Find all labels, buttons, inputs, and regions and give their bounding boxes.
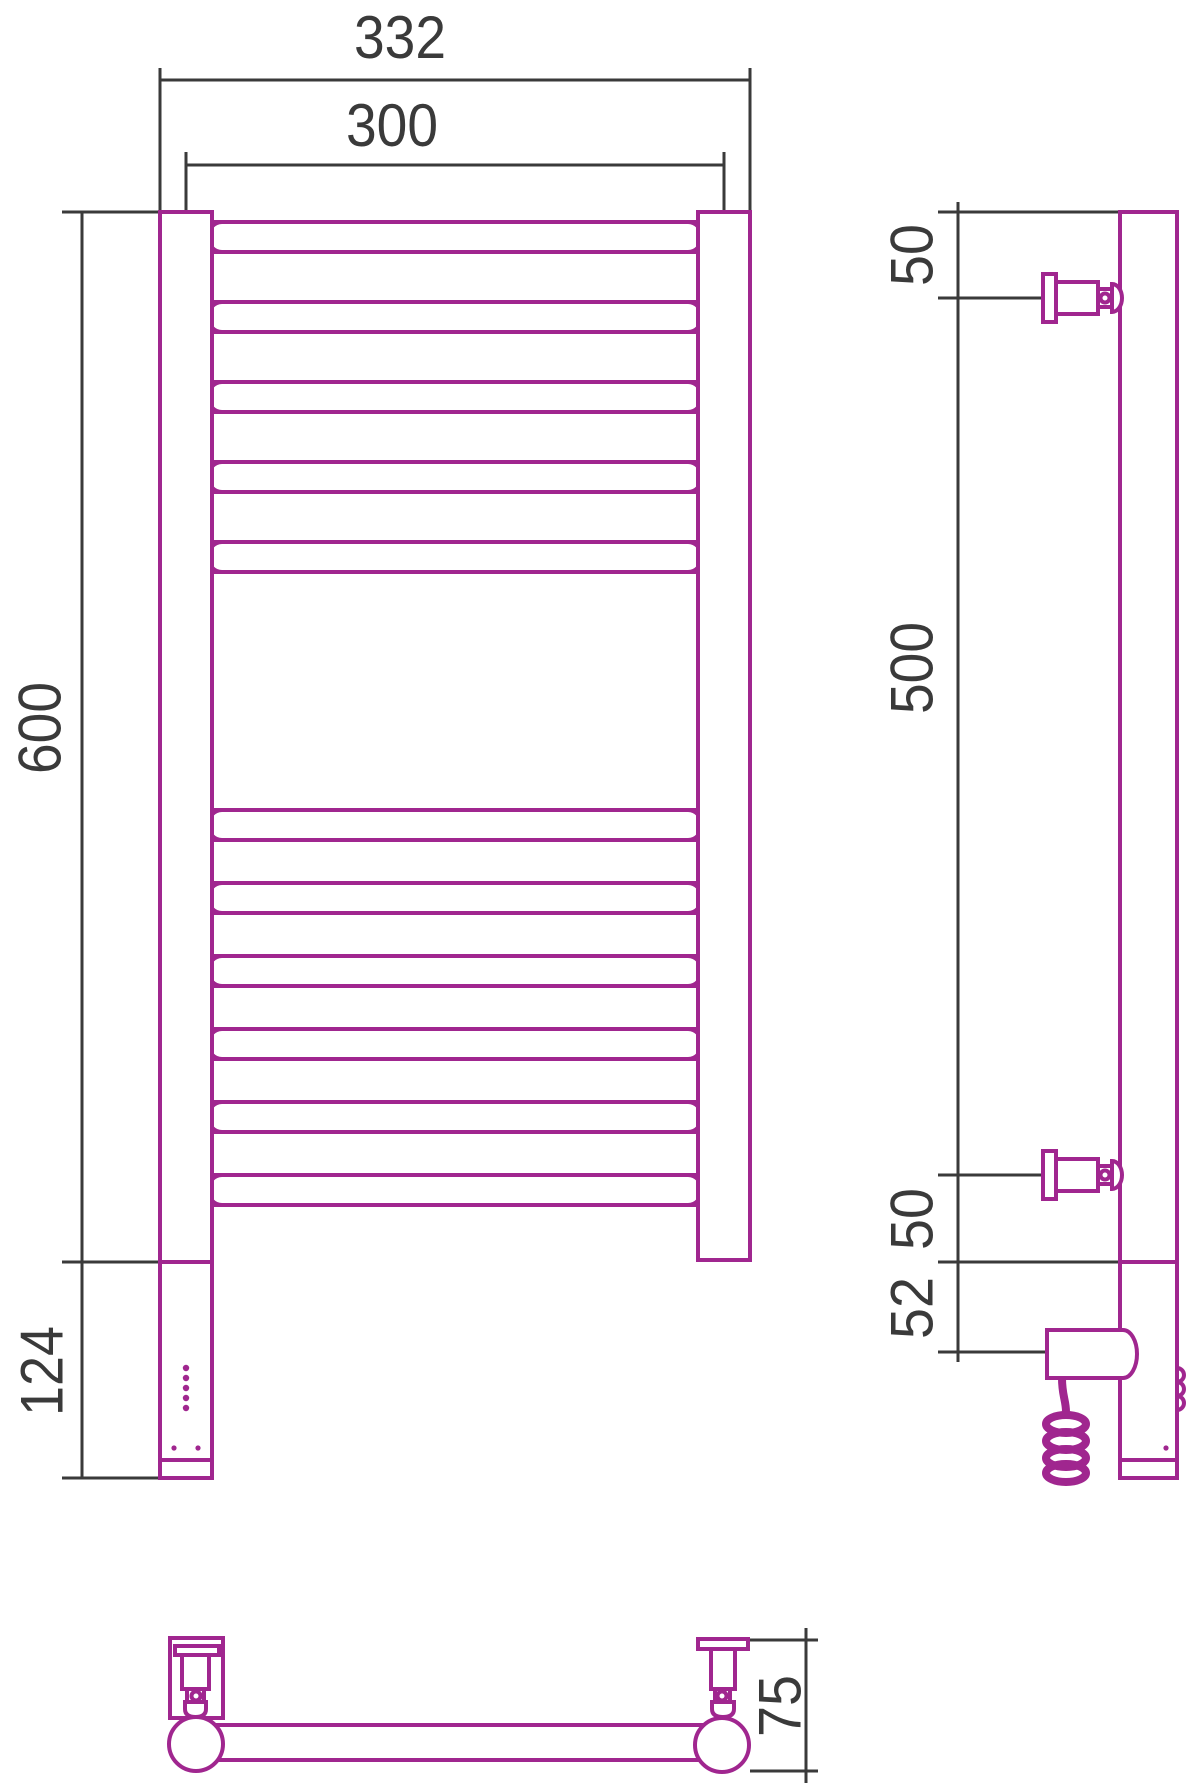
bracket-cap: [1112, 1161, 1122, 1189]
dim-label-bottom-offset: 50: [879, 1188, 946, 1250]
rung: [208, 302, 702, 332]
cable-coil-loop: [1046, 1464, 1086, 1482]
bottom-view: [169, 1638, 749, 1772]
led-indicator-dot: [183, 1385, 189, 1391]
front-heater-housing: [160, 1262, 212, 1478]
screw-dot: [171, 1445, 176, 1450]
rung: [208, 1175, 702, 1205]
side-view: [1043, 212, 1184, 1482]
dim-label-depth: 75: [747, 1675, 814, 1737]
bracket-pivot: [1101, 294, 1110, 303]
bottom-right-assembly: [695, 1639, 749, 1772]
bracket-cap: [185, 1702, 206, 1717]
tube-cross-section: [169, 1717, 223, 1771]
rung: [208, 462, 702, 492]
rung: [208, 883, 702, 913]
screw-dot: [1163, 1445, 1168, 1450]
rung: [208, 222, 702, 252]
led-indicator-dot: [183, 1365, 189, 1371]
power-unit-body: [1047, 1330, 1137, 1378]
led-indicator-dot: [183, 1395, 189, 1401]
screw-dot: [195, 1445, 200, 1450]
dim-label-bottom-section: 52: [879, 1277, 946, 1339]
bracket-body: [1056, 1159, 1098, 1191]
dim-label-mounting-span: 500: [879, 622, 946, 714]
cable-stub: [1062, 1378, 1066, 1412]
dim-label-top-offset: 50: [879, 224, 946, 286]
rung: [208, 542, 702, 572]
front-view: [160, 212, 750, 1478]
rung: [208, 382, 702, 412]
bottom-left-assembly: [169, 1638, 223, 1771]
bracket-body: [182, 1655, 209, 1689]
front-left-collector-tube: [160, 212, 212, 1262]
rung: [208, 1102, 702, 1132]
led-indicator-dot: [183, 1405, 189, 1411]
tube-cross-section: [695, 1718, 749, 1772]
rung: [208, 810, 702, 840]
bracket-pivot: [192, 1692, 201, 1701]
dimension-drawing-page: 332 300 600 124 50 500 50 52: [0, 0, 1200, 1792]
bracket-body: [711, 1649, 735, 1689]
dim-label-heater-section: 124: [9, 1326, 76, 1416]
dim-label-height: 600: [7, 682, 74, 774]
wall-bracket-top: [1043, 274, 1122, 322]
wall-bracket-bottom: [1043, 1151, 1122, 1199]
rungs: [208, 222, 702, 1205]
bracket-cap: [712, 1702, 734, 1717]
bracket-body: [1056, 282, 1098, 314]
dim-label-mounting-width: 300: [346, 92, 438, 159]
dim-height: 600 124: [7, 212, 163, 1478]
led-indicator-dot: [183, 1375, 189, 1381]
dim-overall-width: 332: [160, 4, 750, 212]
side-collector-tube: [1120, 212, 1177, 1262]
towel-rail-technical-drawing: 332 300 600 124 50 500 50 52: [0, 0, 1200, 1792]
front-right-collector-tube: [698, 212, 750, 1260]
dim-label-overall-width: 332: [354, 4, 446, 71]
bracket-pivot: [718, 1692, 727, 1701]
rung: [208, 956, 702, 986]
bottom-dimensions: 75: [747, 1628, 819, 1783]
front-dimensions: 332 300 600 124: [7, 4, 751, 1478]
dim-mounting-width: 300: [186, 92, 724, 212]
bracket-cap: [1112, 284, 1122, 312]
bracket-pivot: [1101, 1171, 1110, 1180]
rung: [208, 1029, 702, 1059]
